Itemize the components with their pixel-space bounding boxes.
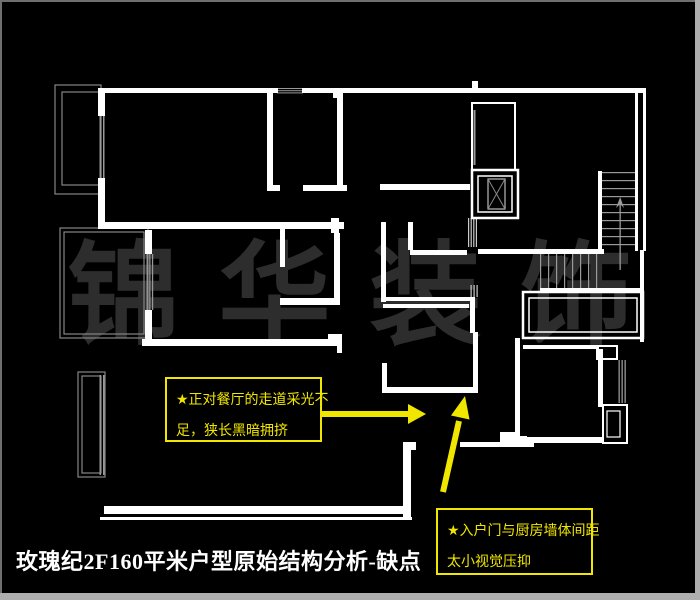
duct-shaft bbox=[472, 103, 515, 170]
annotation-line: 太小视觉压抑 bbox=[447, 546, 583, 577]
annotation-entry-kitchen: ★入户门与厨房墙体间距 太小视觉压抑 bbox=[436, 508, 593, 575]
elevator-shaft-inner bbox=[478, 176, 512, 212]
frame-left-edge bbox=[0, 0, 2, 600]
arrow-right-icon bbox=[322, 404, 426, 424]
frame-bottom-edge bbox=[0, 593, 700, 600]
elevator-car-icon bbox=[488, 179, 505, 209]
annotation-line: 足，狭长黑暗拥挤 bbox=[176, 415, 312, 446]
elevator-shaft-outer bbox=[472, 170, 518, 218]
annotation-corridor-light: ★正对餐厅的走道采光不 足，狭长黑暗拥挤 bbox=[165, 377, 322, 442]
annotation-arrows bbox=[322, 396, 470, 492]
closet-inner bbox=[607, 411, 620, 437]
floor-plan-page: 锦 华 装 饰 bbox=[0, 0, 700, 600]
page-title: 玫瑰纪2F160平米户型原始结构分析-缺点 bbox=[16, 544, 421, 576]
frame-top-edge bbox=[0, 0, 700, 2]
annotation-line: ★正对餐厅的走道采光不 bbox=[176, 384, 312, 415]
frame-right-edge bbox=[695, 0, 700, 600]
annotation-line: ★入户门与厨房墙体间距 bbox=[447, 515, 583, 546]
floor-plan-canvas: 锦 华 装 饰 bbox=[0, 0, 700, 600]
